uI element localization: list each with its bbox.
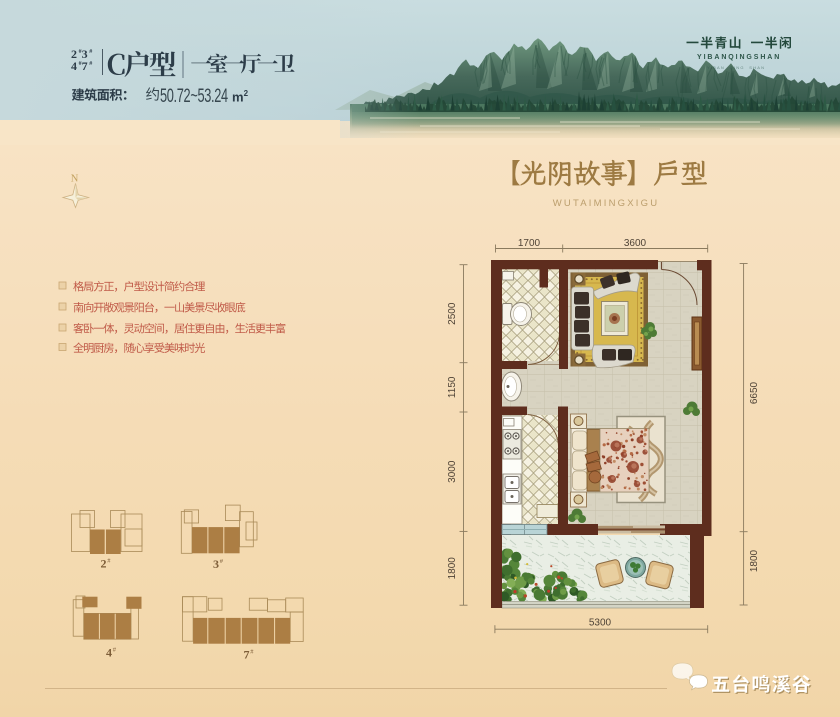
svg-text:N: N [71,174,79,185]
svg-text:3: 3 [213,557,219,571]
svg-text:4: 4 [106,646,112,660]
svg-text:#: # [250,649,254,656]
svg-text:#: # [107,558,111,565]
svg-text:#: # [220,558,224,565]
svg-text:#: # [113,647,117,654]
svg-text:7: 7 [244,648,250,662]
svg-text:2: 2 [101,557,107,571]
